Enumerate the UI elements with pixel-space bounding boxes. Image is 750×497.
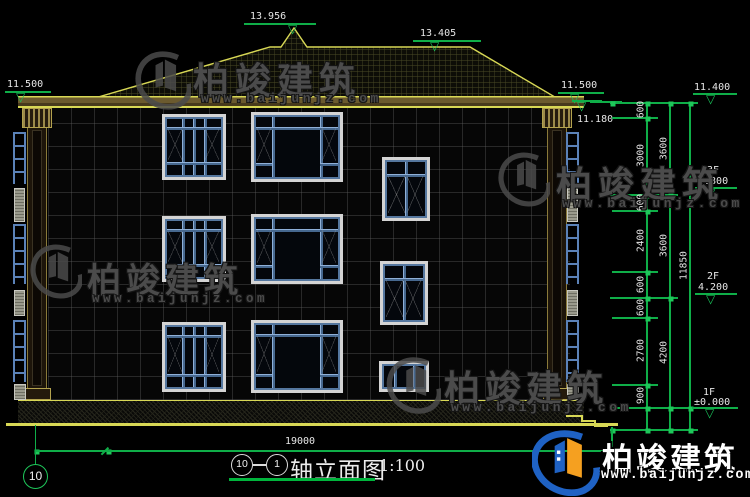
transom [256, 163, 272, 166]
window-frame [383, 264, 425, 322]
title-axis-dash [253, 464, 266, 466]
window-frame [165, 117, 223, 177]
stair-window [380, 261, 428, 325]
window-frame [254, 115, 340, 179]
ridge-level-value: 13.405 [420, 28, 456, 39]
brand-logo-icon [532, 430, 600, 496]
casement-mark [205, 129, 219, 160]
left-side-railing [13, 132, 26, 184]
level-triangle-icon: ▽ [430, 41, 439, 51]
left-side-railing [13, 224, 26, 284]
brand-url: www.baijunjz.com [601, 468, 750, 483]
ridge-level-line [413, 40, 481, 42]
title-axis-end: 1 [266, 454, 288, 476]
watermark-url: www.baijunjz.com [562, 196, 743, 211]
eave-left-line [5, 91, 51, 93]
dim-value: 3600 [659, 224, 670, 268]
dim-value: 900 [636, 374, 647, 418]
title-axis-start: 10 [231, 454, 253, 476]
step-edge [566, 415, 582, 417]
casement-mark [168, 337, 182, 372]
dim-node-markers [0, 0, 2, 2]
casement-mark [388, 176, 405, 213]
casement-mark [205, 337, 219, 372]
drawing-scale: 1:100 [379, 456, 425, 475]
right-pilaster-capital [542, 108, 572, 128]
dim-value: 4200 [659, 331, 670, 375]
window-wide [251, 112, 343, 182]
axis-leader-line [35, 425, 37, 465]
left-side-panel [14, 384, 26, 400]
level-line [692, 407, 738, 409]
window-3part [162, 114, 226, 180]
right-side-panel [567, 290, 578, 316]
window-3part [162, 322, 226, 392]
dim-value: 600 [636, 88, 647, 132]
watermark-logo-icon [135, 50, 191, 110]
watermark-logo-icon [30, 243, 82, 299]
dim-value: 2400 [636, 219, 647, 263]
window-frame [165, 325, 223, 389]
transom [320, 163, 338, 166]
left-side-panel [14, 290, 25, 316]
casement-mark [257, 230, 271, 262]
left-side-panel [14, 188, 25, 222]
level-triangle-icon: ▽ [706, 294, 715, 304]
window-wide [251, 320, 343, 393]
window-frame [254, 217, 340, 281]
step-edge [581, 420, 595, 422]
title-underline [229, 478, 375, 481]
left-side-railing [13, 320, 26, 382]
transom [320, 265, 338, 268]
title-axis-end-label: 1 [274, 458, 280, 470]
floor2-label: 2F [707, 271, 719, 282]
width-dim-value: 19000 [270, 436, 330, 447]
casement-mark [322, 128, 336, 160]
step-edge [594, 425, 608, 427]
dim-tick [610, 102, 698, 104]
dim-total: 11850 [679, 244, 690, 288]
axis-bubble-10: 10 [23, 464, 48, 489]
transom [256, 374, 272, 377]
stair-window [382, 157, 430, 221]
level-triangle-icon: ▽ [16, 92, 25, 102]
transom [320, 374, 338, 377]
left-pilaster-capital [22, 108, 52, 128]
dim-value: 600 [636, 286, 647, 330]
peak-level-value: 13.956 [250, 11, 286, 22]
title-axis-start-label: 10 [236, 458, 248, 470]
watermark-logo-icon [498, 150, 550, 208]
eave-right-value: 11.500 [561, 80, 597, 91]
level-triangle-icon: ▽ [288, 24, 297, 34]
eave-right-line [558, 92, 604, 94]
cad-elevation-drawing: 13.956 ▽ 13.405 ▽ 11.500 ▽ 11.500 ▽ ▽ 11… [0, 0, 750, 497]
watermark-url: www.baijunjz.com [451, 400, 632, 415]
casement-mark [322, 230, 336, 262]
casement-mark [407, 176, 424, 213]
peak-level-line [244, 23, 316, 25]
transom [256, 265, 272, 268]
casement-mark [322, 336, 336, 371]
casement-mark [168, 129, 182, 160]
transom [167, 162, 221, 165]
level-triangle-icon: ▽ [577, 101, 586, 111]
eave-left-value: 11.500 [7, 79, 43, 90]
casement-mark [405, 280, 422, 317]
level-triangle-icon: ▽ [705, 408, 714, 418]
soffit-level-value: 11.180 [577, 114, 613, 125]
watermark-logo-icon [386, 356, 441, 414]
ground-line [6, 423, 618, 426]
window-frame [254, 323, 340, 390]
transom [167, 374, 221, 377]
watermark-url: www.baijunjz.com [201, 91, 382, 106]
casement-mark [257, 336, 271, 371]
axis-bubble-label: 10 [29, 469, 42, 483]
level-triangle-icon: ▽ [706, 94, 715, 104]
dim-value: 2700 [636, 329, 647, 373]
dim-tick [610, 429, 698, 431]
casement-mark [257, 128, 271, 160]
window-wide [251, 214, 343, 284]
left-pilaster-base [23, 388, 51, 400]
casement-mark [386, 280, 403, 317]
window-frame [385, 160, 427, 218]
watermark-url: www.baijunjz.com [92, 292, 268, 306]
right-side-railing [566, 224, 579, 284]
level-line [695, 293, 737, 295]
